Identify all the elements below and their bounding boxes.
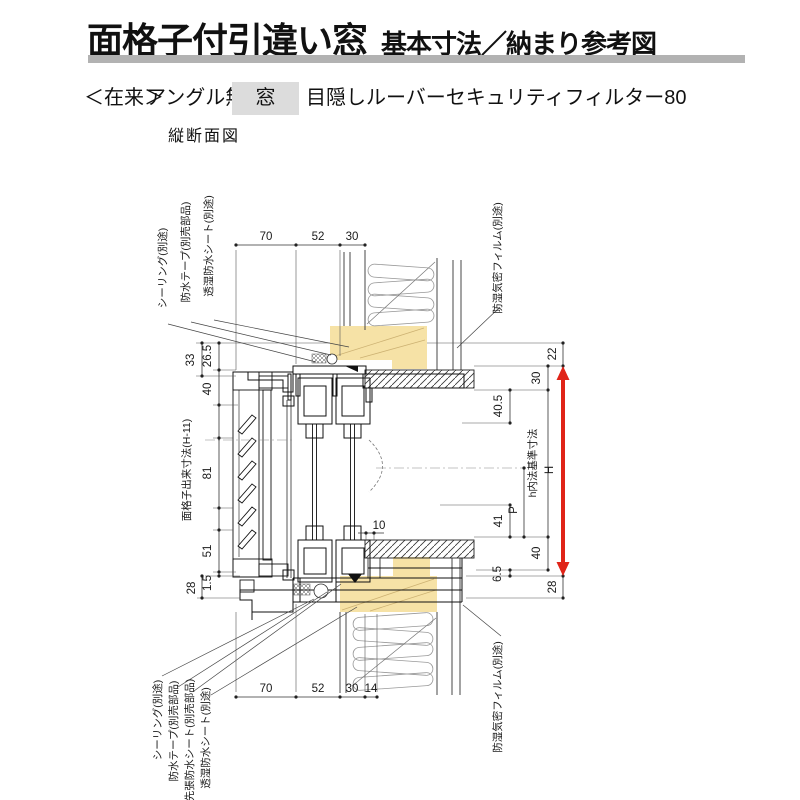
annotation-labels: シーリング(別途) 防水テープ(別売部品) 透湿防水シート(別途) 防湿気密フィ…	[151, 195, 504, 800]
dim-left-28: 28	[186, 582, 198, 595]
height-H-arrow	[557, 366, 570, 576]
dim-bottom-52: 52	[312, 683, 325, 695]
dim-right-30: 30	[531, 372, 543, 385]
dim-bottom-70: 70	[260, 683, 273, 695]
label-breathable-sheet-top: 透湿防水シート(別途)	[202, 195, 215, 297]
dim-right-22: 22	[547, 348, 559, 361]
label-vapor-film-top: 防湿気密フィルム(別途)	[491, 202, 504, 314]
dimension-text-left: 33 26.5 40 81 51 1.5 28 面格子出来寸法(H-11)	[180, 345, 214, 595]
label-vapor-film-bottom: 防湿気密フィルム(別途)	[491, 641, 504, 753]
extension-lines	[196, 250, 563, 692]
dim-right-40: 40	[531, 547, 543, 560]
label-pre-applied-sheet-bottom: 先張防水シート(別売部品)	[183, 679, 196, 800]
label-sealing-bottom: シーリング(別途)	[151, 680, 164, 761]
dim-left-81: 81	[202, 467, 214, 480]
dim-bottom-30: 30	[346, 683, 359, 695]
dim-right-41: 41	[493, 515, 505, 528]
dim-right-P: P	[508, 506, 520, 514]
dim-top-30: 30	[346, 231, 359, 243]
dim-left-1-5: 1.5	[202, 575, 214, 591]
dim-gap-10: 10	[373, 520, 386, 532]
dim-left-51: 51	[202, 545, 214, 558]
cross-section-drawing: 70 52 30 70 52 30 14 10 33 26.5 40 81 51…	[0, 0, 800, 800]
dim-left-40: 40	[202, 383, 214, 396]
dimension-text-horizontal: 70 52 30 70 52 30 14 10	[260, 231, 386, 695]
label-sealing-top: シーリング(別途)	[156, 228, 169, 309]
dimension-ticks	[200, 243, 564, 698]
dim-right-28: 28	[547, 581, 559, 594]
dim-top-52: 52	[312, 231, 325, 243]
dim-right-40-5: 40.5	[493, 395, 505, 417]
dim-bottom-14: 14	[365, 683, 378, 695]
label-waterproof-tape-top: 防水テープ(別売部品)	[179, 202, 192, 303]
dimension-text-right: 22 30 40.5 h内法基準寸法 H 41 P 40 6.5 28	[492, 348, 559, 594]
face-lattice-louver	[233, 372, 288, 592]
lattice-finished-dimension-label: 面格子出来寸法(H-11)	[180, 419, 193, 521]
inner-standard-dimension-label: h内法基準寸法	[526, 429, 539, 498]
dim-left-26-5: 26.5	[202, 345, 214, 367]
label-breathable-sheet-bottom: 透湿防水シート(別途)	[199, 687, 212, 789]
dim-right-6-5: 6.5	[492, 566, 504, 582]
dim-right-H: H	[544, 466, 556, 474]
wall-structure	[340, 250, 461, 695]
page: { "header": { "title_main": "面格子付引違い窓", …	[0, 0, 800, 800]
dim-top-70: 70	[260, 231, 273, 243]
dim-left-33: 33	[185, 354, 197, 367]
wood-framing-blocks	[330, 326, 437, 612]
label-waterproof-tape-bottom: 防水テープ(別売部品)	[167, 681, 180, 782]
